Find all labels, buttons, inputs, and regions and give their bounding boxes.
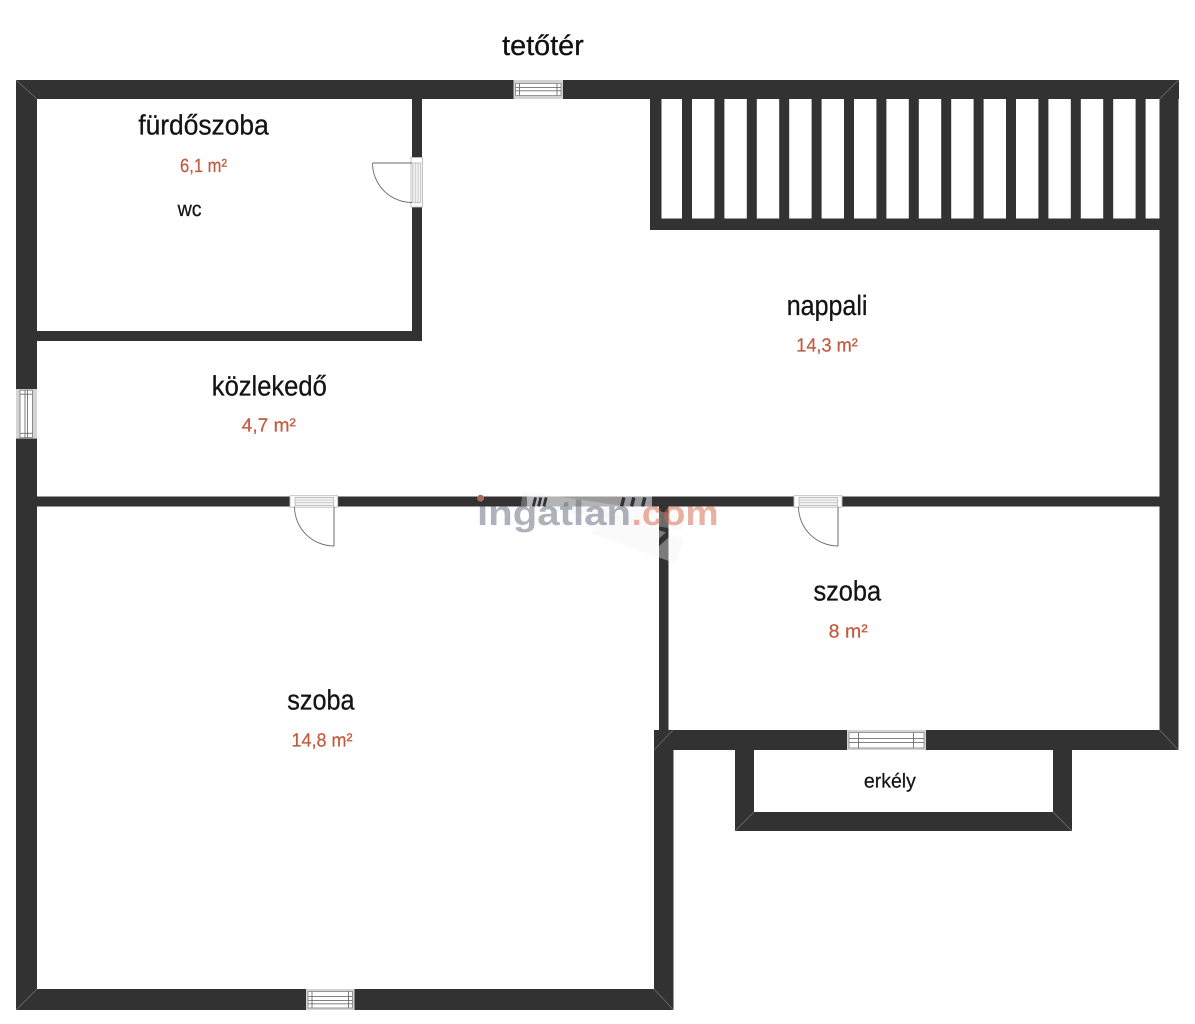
svg-text:fürdőszoba: fürdőszoba xyxy=(138,110,269,141)
svg-text:tetőtér: tetőtér xyxy=(502,30,584,61)
svg-text:6,1 m²: 6,1 m² xyxy=(180,156,227,177)
svg-text:wc: wc xyxy=(177,198,202,221)
svg-text:ıngatlan: ıngatlan xyxy=(477,494,631,533)
svg-text:szoba: szoba xyxy=(287,685,355,716)
svg-text:közlekedő: közlekedő xyxy=(212,371,327,402)
svg-text:.com: .com xyxy=(632,494,719,533)
svg-text:erkély: erkély xyxy=(864,771,916,793)
svg-text:14,8 m²: 14,8 m² xyxy=(292,731,353,752)
svg-text:8 m²: 8 m² xyxy=(829,622,868,643)
svg-text:14,3 m²: 14,3 m² xyxy=(796,336,858,357)
svg-text:4,7 m²: 4,7 m² xyxy=(242,416,296,437)
svg-text:szoba: szoba xyxy=(813,576,881,607)
svg-text:nappali: nappali xyxy=(787,290,868,321)
